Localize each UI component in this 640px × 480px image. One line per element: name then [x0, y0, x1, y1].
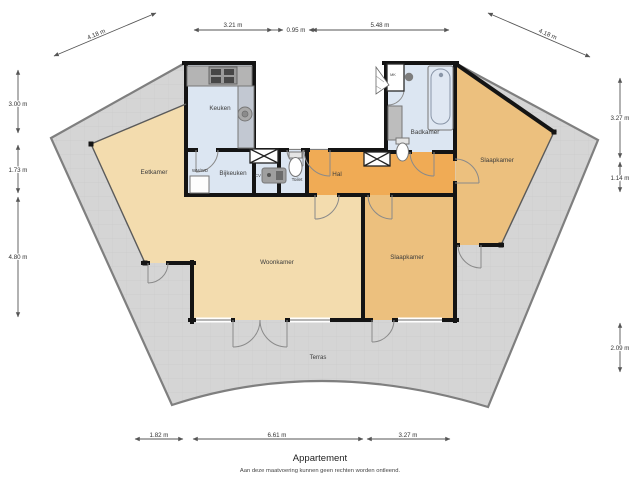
dim-top-diag-left: 4.18 m — [86, 28, 106, 42]
dim-top-diag-right: 4.18 m — [538, 28, 558, 42]
dim-bottom-2: 6.61 m — [268, 432, 287, 439]
fan-icon — [405, 73, 413, 81]
label-mk: MK — [390, 73, 396, 77]
dim-top-3: 5.48 m — [371, 22, 390, 29]
dim-right-3: 2.09 m — [611, 345, 630, 352]
page-title: Appartement — [293, 453, 348, 464]
label-bijkeuken: Bijkeuken — [219, 170, 247, 177]
label-eetkamer: Eetkamer — [141, 169, 168, 176]
floorplan-canvas: Keuken Eetkamer Bijkeuken WM/WD CV Toile… — [0, 0, 640, 480]
dim-left-3: 4.80 m — [9, 254, 28, 261]
label-slaapkamer-rechts: Slaapkamer — [480, 157, 514, 164]
toilet-icon — [289, 152, 302, 177]
label-terras: Terras — [310, 355, 327, 361]
label-toilet: Toilet — [292, 177, 303, 182]
bathroom-toilet-bowl — [397, 143, 409, 161]
label-cv: CV — [255, 173, 261, 178]
dim-left-1: 3.00 m — [9, 101, 28, 108]
dim-bottom-3: 3.27 m — [399, 432, 418, 439]
label-keuken: Keuken — [209, 105, 231, 112]
label-wmwd: WM/WD — [192, 168, 208, 173]
mk-closet — [387, 64, 404, 91]
label-woonkamer: Woonkamer — [260, 259, 294, 266]
label-slaapkamer-zuid: Slaapkamer — [390, 254, 424, 261]
washer-dryer-icon — [190, 176, 209, 193]
label-badkamer: Badkamer — [411, 129, 440, 136]
dim-right-1: 3.27 m — [611, 115, 630, 122]
dim-right-2: 1.14 m — [611, 175, 630, 182]
label-hal: Hal — [332, 171, 341, 178]
disclaimer-text: Aan deze maatvoering kunnen geen rechten… — [240, 468, 401, 474]
dim-top-2: 0.95 m — [287, 27, 306, 34]
cv-boiler-icon — [262, 168, 286, 183]
washbasin-icon — [388, 106, 402, 140]
dim-bottom-1: 1.82 m — [150, 432, 169, 439]
dim-top-1: 3.21 m — [224, 22, 243, 29]
dim-left-2: 1.73 m — [9, 167, 28, 174]
